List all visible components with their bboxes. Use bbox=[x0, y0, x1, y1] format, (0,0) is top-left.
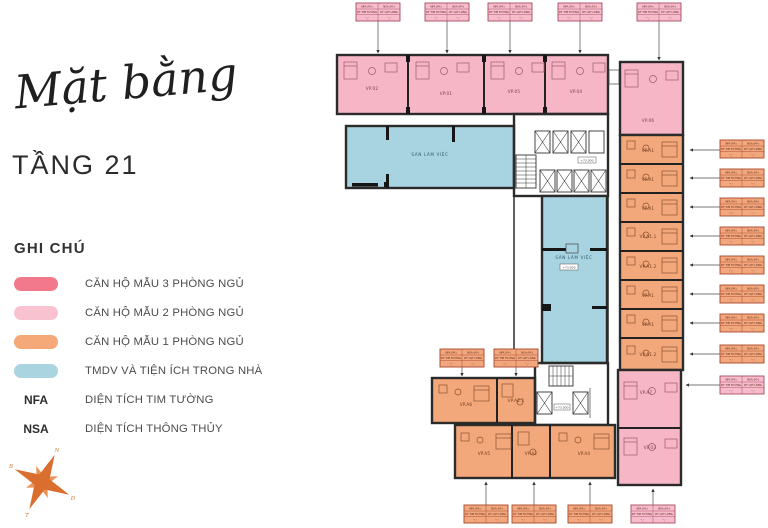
amenity-strip: SÀN LÀM VIỆC +73.000 bbox=[514, 196, 608, 363]
unit-label: VP.A7 bbox=[640, 390, 653, 395]
unit-callout bbox=[720, 256, 764, 274]
unit-callout bbox=[464, 505, 508, 523]
unit-callout bbox=[425, 3, 469, 21]
unit-callout bbox=[356, 3, 400, 21]
floor-plan: NFA (M²) NSA (M²) DT TIM TƯỜNG DT LỌT LÒ… bbox=[0, 0, 768, 528]
amenity-label: SÀN LÀM VIỆC bbox=[411, 152, 448, 157]
right-column: VP.A1 VP.A1 VP.A1 VP.A1.1 VP.A1.2 VP.A1 … bbox=[620, 135, 683, 370]
unit-callout bbox=[637, 3, 681, 21]
compass-letter-se: Đ bbox=[70, 496, 76, 502]
unit-label: VP.06 bbox=[642, 118, 655, 123]
unit-callout bbox=[568, 505, 612, 523]
unit-callout bbox=[720, 169, 764, 187]
unit-label: VP.A2.1 bbox=[508, 398, 525, 403]
compass-letter-nw: B bbox=[8, 464, 13, 470]
unit-label: VP.A1.2 bbox=[640, 264, 657, 269]
svg-text:+73.000: +73.000 bbox=[580, 159, 593, 163]
page: Mặt bằng TẦNG 21 GHI CHÚ CĂN HỘ MẪU 3 PH… bbox=[0, 0, 768, 528]
svg-text:+73.000: +73.000 bbox=[562, 266, 575, 270]
unit-vp06: VP.06 bbox=[609, 62, 683, 135]
core-mid: +73.000 bbox=[514, 114, 608, 196]
unit-label: VP.04 bbox=[570, 89, 583, 94]
unit-callout bbox=[558, 3, 602, 21]
unit-label: VP.A6 bbox=[460, 402, 473, 407]
bottom-cluster: VP.A6 VP.A2.1 +73.000 VP.A5 VP.A2 VP.A4 bbox=[432, 363, 615, 478]
unit-label: VP.A2 bbox=[525, 451, 538, 456]
unit-label: VP.A1 bbox=[642, 177, 655, 182]
unit-callout bbox=[720, 140, 764, 158]
unit-callout bbox=[720, 227, 764, 245]
top-wing: VP.02 VP.01 VP.05 VP.04 bbox=[337, 55, 608, 114]
unit-vp02-block bbox=[337, 55, 608, 114]
compass-rose: N Đ T B bbox=[8, 448, 76, 519]
unit-callout bbox=[720, 314, 764, 332]
amenity-label: SÀN LÀM VIỆC bbox=[555, 255, 592, 260]
unit-callout bbox=[631, 505, 675, 523]
unit-label: VP.A1.1 bbox=[640, 234, 657, 239]
unit-label: VP.A1 bbox=[642, 293, 655, 298]
compass-letter-sw: T bbox=[25, 513, 29, 519]
unit-callout bbox=[720, 376, 764, 394]
bottom-right-units: VP.A7 VP.03 bbox=[618, 370, 681, 485]
unit-callout bbox=[720, 198, 764, 216]
unit-callout bbox=[720, 345, 764, 363]
elevation-tag: +73.000 bbox=[560, 264, 578, 270]
compass-letter-ne: N bbox=[54, 448, 60, 454]
unit-label: VP.A4 bbox=[578, 451, 591, 456]
unit-label: VP.A1 bbox=[642, 148, 655, 153]
unit-label: VP.05 bbox=[508, 89, 521, 94]
unit-label: VP.01 bbox=[440, 91, 453, 96]
unit-callout bbox=[494, 349, 538, 367]
unit-label: VP.A1 bbox=[642, 322, 655, 327]
unit-callout bbox=[512, 505, 556, 523]
core-bottom: +73.000 bbox=[535, 363, 608, 425]
elevation-tag: +73.000 bbox=[554, 404, 570, 410]
elevation-tag: +73.000 bbox=[578, 157, 596, 163]
amenity-band: SÀN LÀM VIỆC bbox=[346, 126, 514, 188]
unit-label: VP.A1 bbox=[642, 206, 655, 211]
unit-label: VP.A5 bbox=[478, 451, 491, 456]
unit-label: VP.03 bbox=[644, 445, 657, 450]
unit-callout bbox=[488, 3, 532, 21]
unit-label: VP.02 bbox=[366, 86, 379, 91]
unit-callout bbox=[440, 349, 484, 367]
unit-callout bbox=[720, 285, 764, 303]
unit-label: VP.A1.2 bbox=[640, 352, 657, 357]
svg-text:+73.000: +73.000 bbox=[555, 406, 568, 410]
